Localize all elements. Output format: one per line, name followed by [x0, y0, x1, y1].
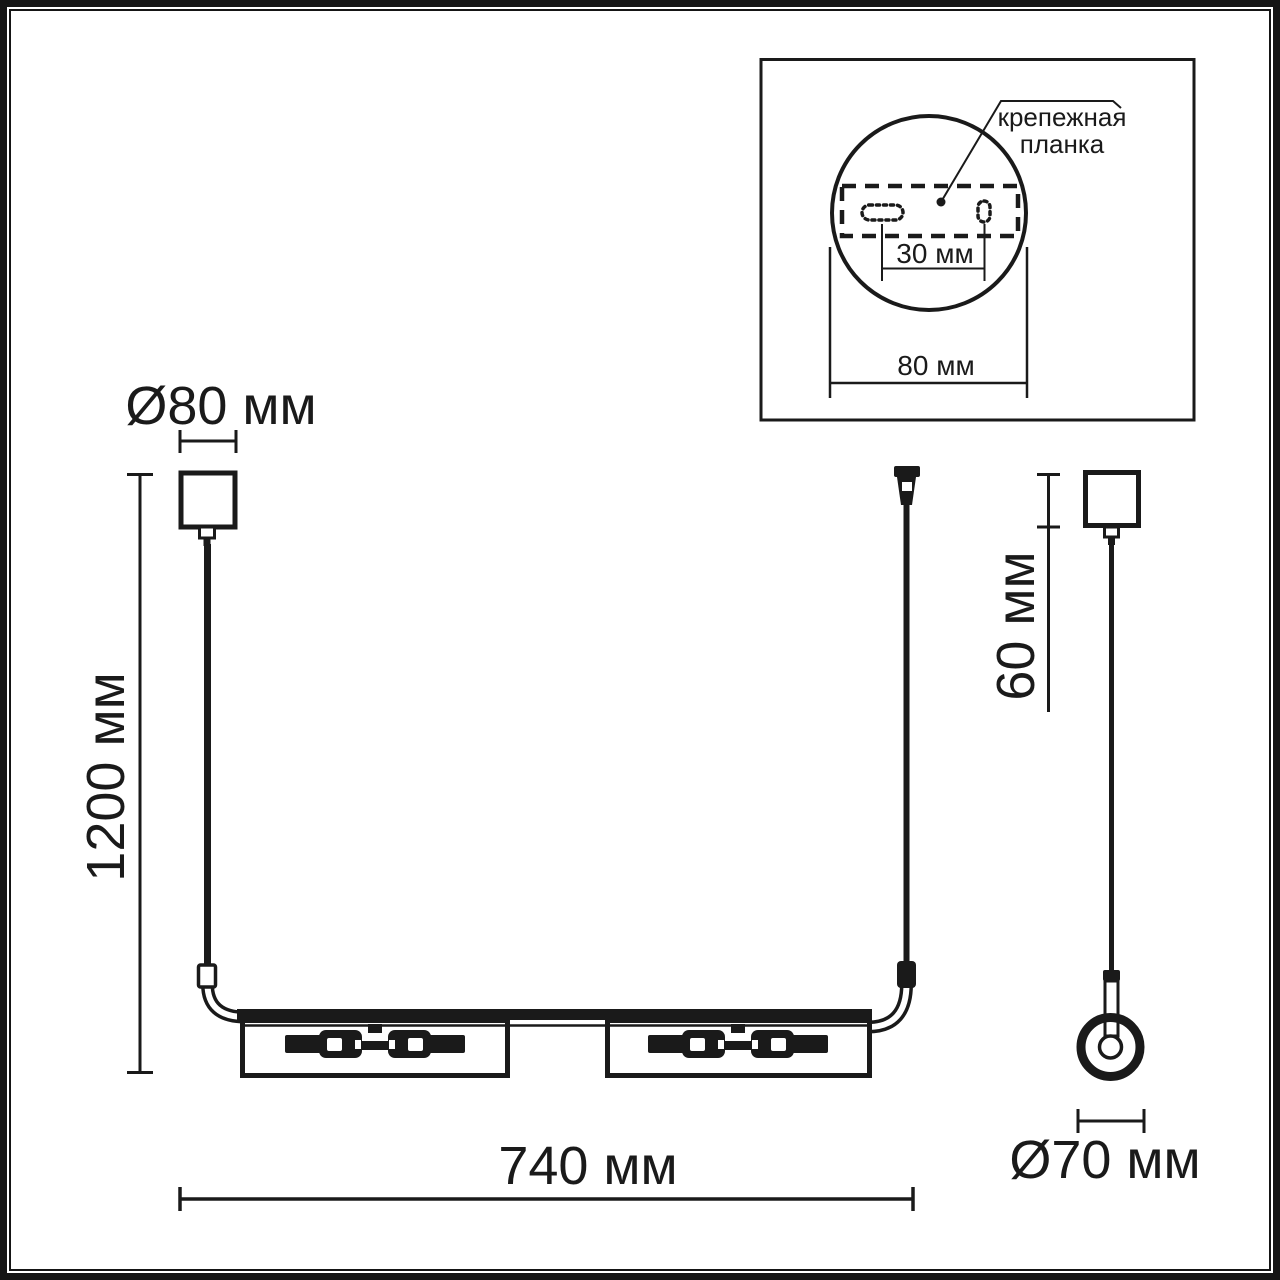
bar-width-label: 740 мм	[498, 1136, 677, 1196]
side-connector-rod	[1105, 981, 1118, 1036]
front-view	[127, 430, 920, 1211]
canopy-front	[181, 473, 235, 527]
canopy-side	[1086, 473, 1139, 526]
mounting-slot-left	[862, 205, 903, 220]
side-connector-cap	[1103, 970, 1120, 981]
canopy-neck	[200, 527, 215, 538]
mounting-plate-label-line2: планка	[1020, 129, 1105, 159]
shade-diameter-label: Ø70 мм	[1009, 1130, 1200, 1190]
left-cable-connector	[199, 965, 216, 987]
side-view	[1037, 473, 1144, 1134]
right-cable-bend	[868, 984, 907, 1027]
inset-box	[761, 60, 1194, 421]
canopy-side-neck	[1105, 527, 1119, 537]
canopy-height-label: 60 мм	[986, 551, 1046, 700]
mounting-hole-right	[978, 201, 990, 222]
drop-height-label: 1200 мм	[76, 672, 136, 881]
hole-spacing-label: 30 мм	[896, 238, 973, 269]
mounting-plate-outline	[842, 186, 1018, 236]
canopy-diameter-label: Ø80 мм	[125, 376, 316, 436]
mounting-plate-label-line1: крепежная	[998, 102, 1127, 132]
bar-end-ring-hole	[1100, 1036, 1122, 1058]
mounting-plate-inset	[761, 60, 1194, 421]
right-cable-connector	[897, 961, 916, 988]
pendant-light-dimension-drawing: Ø80 мм 1200 мм 740 мм 60 мм Ø70 мм крепе…	[0, 0, 1280, 1280]
right-cable-plug	[894, 466, 920, 505]
plate-width-label: 80 мм	[897, 350, 974, 381]
technical-drawing-sheet: Ø80 мм 1200 мм 740 мм 60 мм Ø70 мм крепе…	[0, 0, 1280, 1280]
